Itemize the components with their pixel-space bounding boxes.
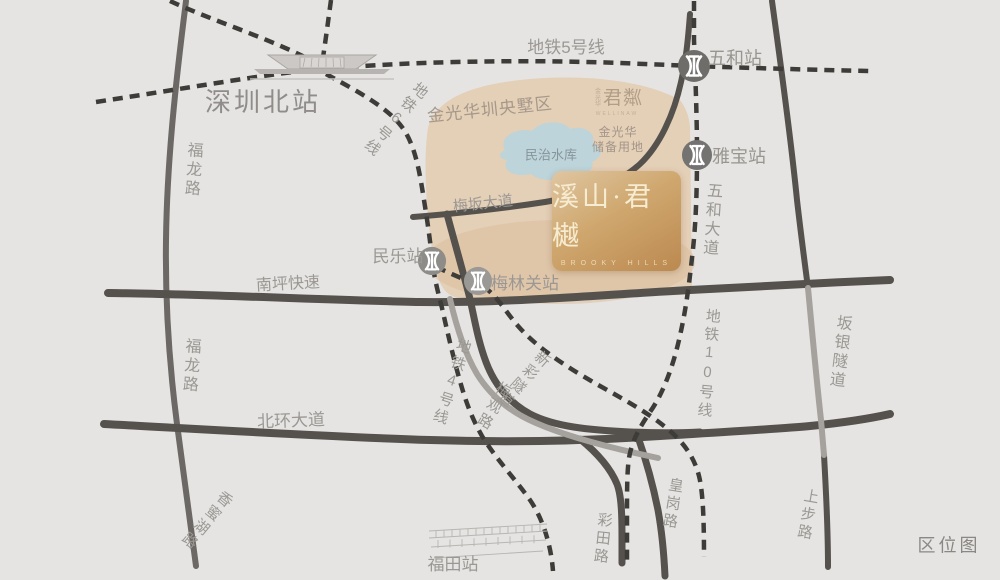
junlin-logo: 金光华 君粼 WELLINAW: [591, 89, 643, 117]
label-reservoir: 民治水库: [525, 149, 577, 164]
label-wuhe-station: 五和站: [708, 49, 762, 70]
project-card-subtitle: BROOKY HILLS: [561, 260, 672, 267]
junlin-logo-subtitle: WELLINAW: [591, 111, 643, 117]
label-meilinguan-station: 梅林关站: [491, 274, 559, 294]
location-map: 地铁5号线 五和站 深圳北站 地铁6号线 金光华圳央墅区 金光华 君粼 WELL…: [0, 0, 1000, 580]
junlin-logo-prefix: 金光华: [591, 89, 601, 109]
project-card-name: 溪山·君樾: [552, 175, 681, 253]
road-beihuan-avenue: [104, 414, 890, 441]
label-nanping-expressway: 南坪快速: [256, 274, 321, 296]
label-yabao-station: 雅宝站: [712, 147, 766, 168]
label-beihuan-avenue: 北环大道: [257, 410, 326, 432]
wuhe-station-icon: [678, 50, 710, 82]
metro-feeder-north: [322, 0, 331, 64]
label-metro-line5: 地铁5号线: [527, 38, 604, 58]
junlin-logo-name: 君粼: [603, 89, 643, 108]
label-futian-station: 福田站: [428, 555, 479, 575]
road-banyin-north: [772, 1, 808, 288]
label-shenzhen-north-station: 深圳北站: [205, 88, 321, 118]
label-reserved-land: 金光华 储备用地: [592, 125, 644, 155]
corner-map-title: 区位图: [918, 535, 981, 556]
corner-map-title-text: 区位图: [918, 535, 981, 555]
futian-station-building: [429, 524, 547, 558]
project-card: 溪山·君樾 BROOKY HILLS: [552, 171, 681, 271]
label-minle-station: 民乐站: [373, 247, 424, 267]
road-fulong-xiangmihu: [166, 1, 196, 566]
reserved-land-line1: 金光华: [592, 125, 644, 140]
reserved-land-line2: 储备用地: [592, 140, 644, 155]
road-shangbu: [824, 455, 828, 567]
meilinguan-station-icon: [464, 267, 492, 295]
yabao-station-icon: [682, 140, 712, 170]
